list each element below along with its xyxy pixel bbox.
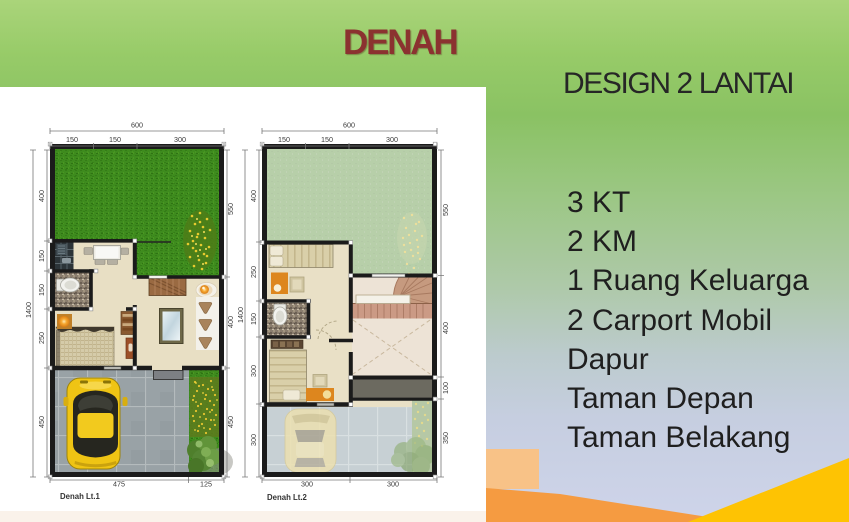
svg-text:600: 600 [131,121,143,130]
svg-text:1400: 1400 [24,302,33,318]
svg-text:300: 300 [249,434,258,446]
svg-text:475: 475 [113,480,125,489]
svg-text:250: 250 [37,332,46,344]
svg-text:300: 300 [249,365,258,377]
svg-text:400: 400 [249,190,258,202]
svg-text:250: 250 [249,266,258,278]
svg-text:300: 300 [174,135,186,144]
svg-text:1400: 1400 [236,307,245,323]
svg-text:600: 600 [343,121,355,130]
svg-text:300: 300 [387,480,399,489]
svg-text:450: 450 [37,416,46,428]
svg-text:125: 125 [200,480,212,489]
svg-text:550: 550 [441,204,450,216]
svg-text:300: 300 [301,480,313,489]
svg-text:150: 150 [109,135,121,144]
svg-text:150: 150 [37,284,46,296]
svg-text:550: 550 [226,203,235,215]
svg-text:150: 150 [66,135,78,144]
svg-text:100: 100 [441,382,450,394]
svg-text:150: 150 [37,250,46,262]
svg-text:400: 400 [226,316,235,328]
svg-text:Denah Lt.1: Denah Lt.1 [60,492,101,501]
svg-text:400: 400 [441,322,450,334]
svg-text:150: 150 [278,135,290,144]
svg-text:Denah Lt.2: Denah Lt.2 [267,493,308,502]
svg-text:150: 150 [321,135,333,144]
svg-text:350: 350 [441,432,450,444]
svg-text:450: 450 [226,416,235,428]
svg-text:400: 400 [37,190,46,202]
svg-text:150: 150 [249,313,258,325]
svg-text:300: 300 [386,135,398,144]
